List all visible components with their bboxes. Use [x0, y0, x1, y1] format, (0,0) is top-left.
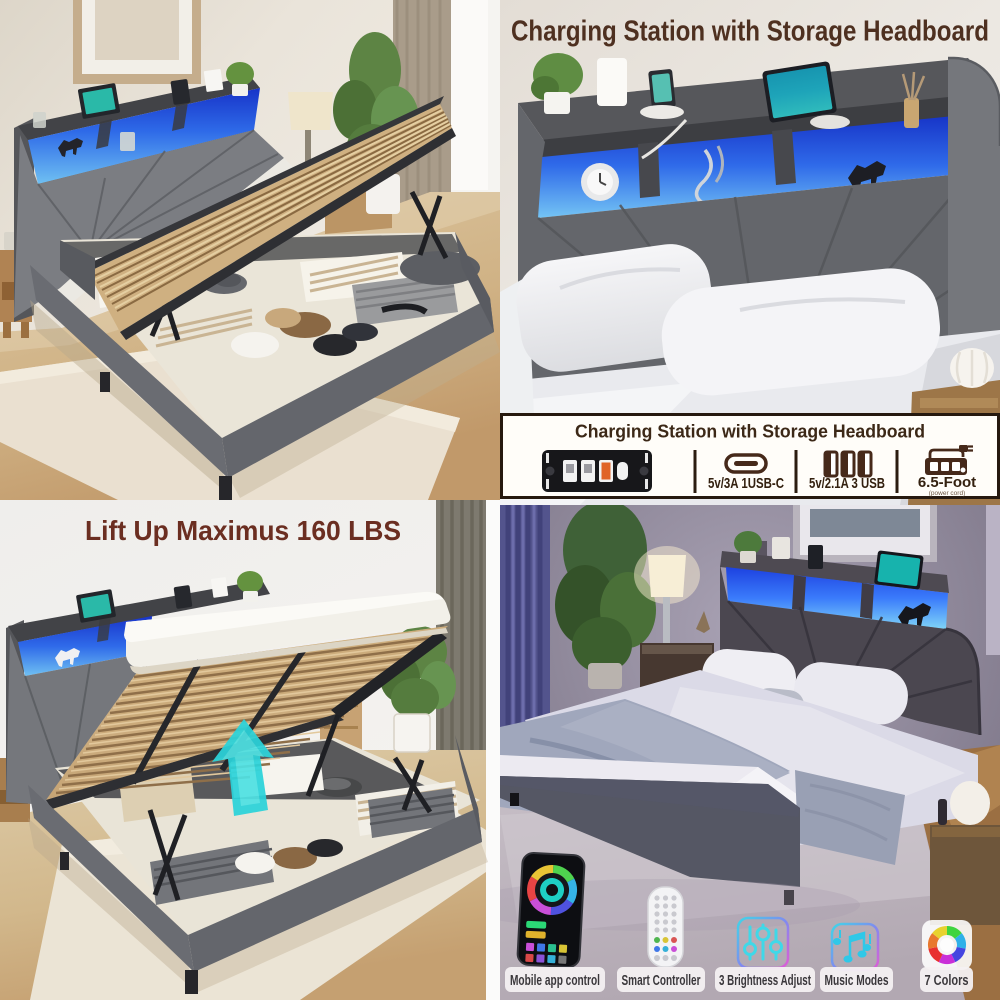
svg-text:Lift Up Maximus 160 LBS: Lift Up Maximus 160 LBS — [85, 515, 401, 546]
svg-text:Smart Controller: Smart Controller — [622, 973, 701, 989]
svg-text:5v/2.1A 3 USB: 5v/2.1A 3 USB — [809, 475, 885, 492]
svg-text:Mobile app control: Mobile app control — [510, 973, 600, 989]
svg-text:Charging Station with Storage: Charging Station with Storage Headboard — [575, 421, 925, 442]
svg-text:5v/3A 1USB-C: 5v/3A 1USB-C — [708, 475, 784, 492]
svg-text:(power cord): (power cord) — [929, 490, 965, 497]
svg-text:3 Brightness Adjust: 3 Brightness Adjust — [719, 973, 811, 989]
svg-text:6.5-Foot: 6.5-Foot — [918, 474, 976, 491]
svg-text:7 Colors: 7 Colors — [925, 973, 969, 989]
svg-text:Music Modes: Music Modes — [825, 973, 889, 989]
svg-text:Charging Station with Storage: Charging Station with Storage Headboard — [511, 16, 989, 48]
